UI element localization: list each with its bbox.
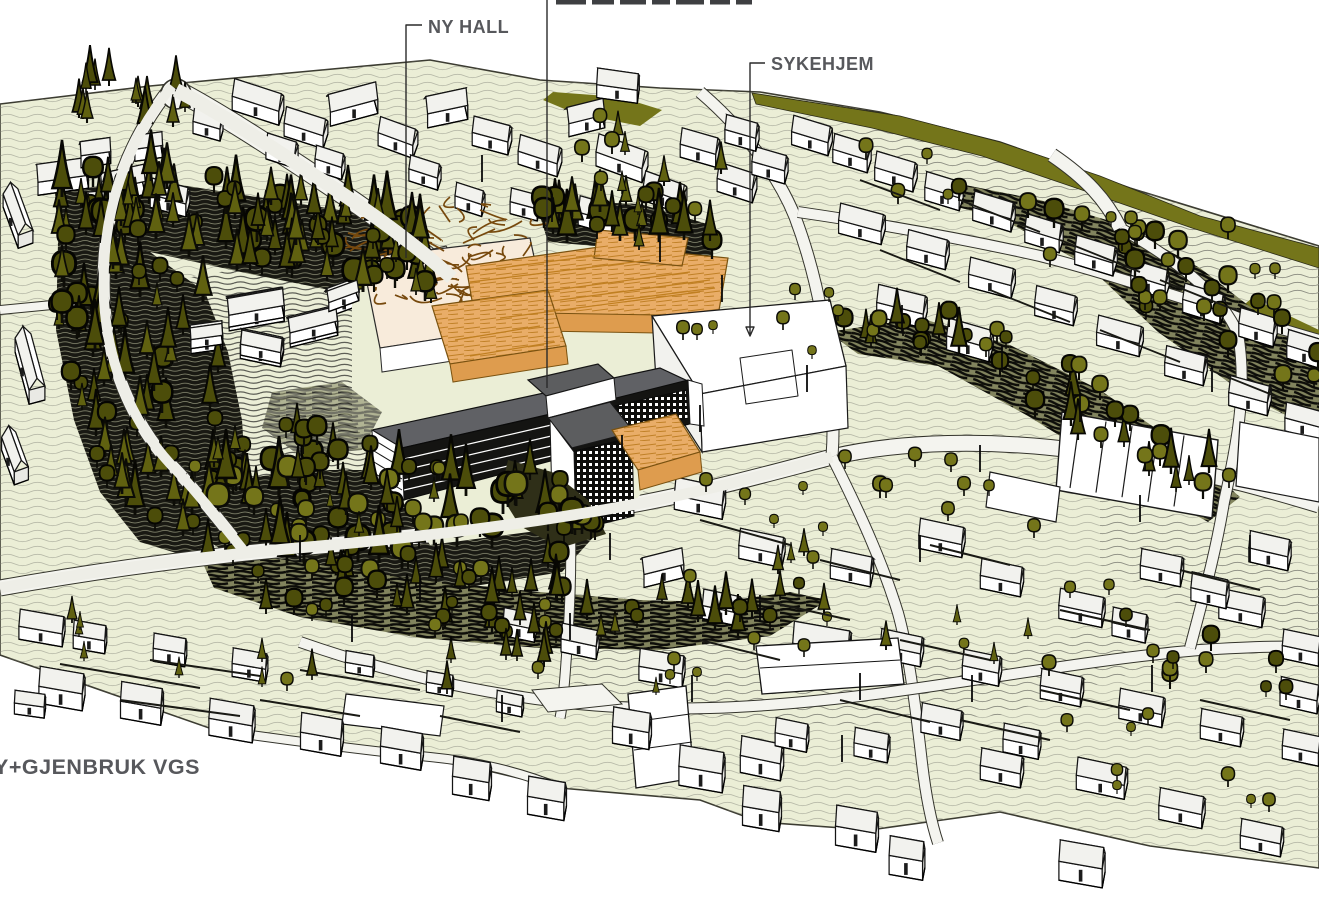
svg-text:SYKEHJEM: SYKEHJEM <box>771 54 874 74</box>
svg-text:Y+GJENBRUK VGS: Y+GJENBRUK VGS <box>0 755 200 779</box>
svg-text:NY HALL: NY HALL <box>428 17 509 37</box>
